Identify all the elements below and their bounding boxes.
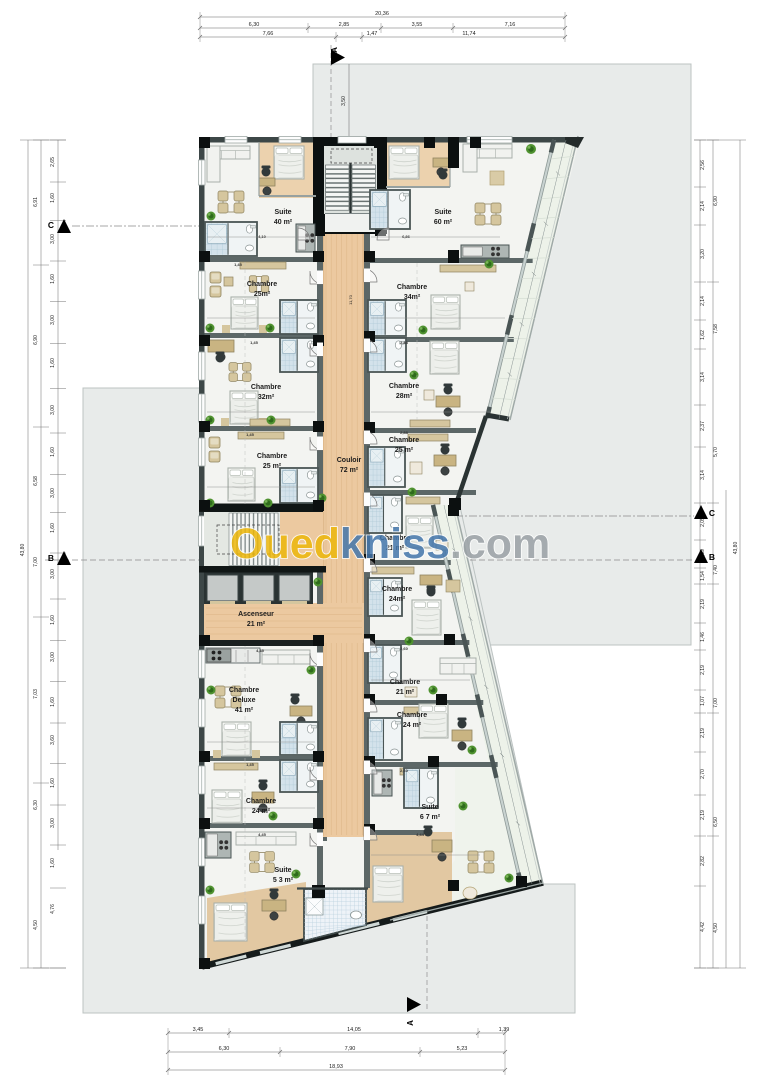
svg-text:Suite: Suite bbox=[434, 209, 451, 216]
svg-text:34m²: 34m² bbox=[404, 294, 421, 301]
svg-text:4,50: 4,50 bbox=[33, 920, 39, 930]
svg-text:Ouedkniss.com: Ouedkniss.com bbox=[230, 520, 550, 568]
svg-text:Chambre: Chambre bbox=[389, 383, 419, 390]
svg-text:1,39: 1,39 bbox=[499, 1027, 510, 1033]
svg-text:41 m²: 41 m² bbox=[235, 707, 254, 714]
svg-text:1,60: 1,60 bbox=[50, 697, 56, 707]
svg-text:3,00: 3,00 bbox=[50, 652, 56, 662]
svg-text:40 m²: 40 m² bbox=[274, 219, 293, 226]
svg-text:11,74: 11,74 bbox=[462, 31, 475, 37]
svg-text:24 m²: 24 m² bbox=[403, 722, 422, 729]
svg-text:Chambre: Chambre bbox=[229, 687, 259, 694]
svg-text:C: C bbox=[48, 220, 54, 230]
svg-text:25m²: 25m² bbox=[254, 291, 271, 298]
svg-text:6,30: 6,30 bbox=[249, 22, 260, 28]
svg-text:7,40: 7,40 bbox=[713, 565, 719, 575]
svg-text:3,00: 3,00 bbox=[50, 315, 56, 325]
svg-text:3,00: 3,00 bbox=[50, 818, 56, 828]
svg-text:Couloir: Couloir bbox=[337, 457, 362, 464]
svg-text:6,30: 6,30 bbox=[219, 1046, 230, 1052]
svg-text:1,60: 1,60 bbox=[50, 523, 56, 533]
svg-text:4,45: 4,45 bbox=[258, 832, 267, 837]
svg-text:1,54: 1,54 bbox=[700, 571, 706, 581]
svg-text:2,60: 2,60 bbox=[400, 646, 409, 651]
svg-text:Chambre: Chambre bbox=[382, 586, 412, 593]
svg-text:11,70: 11,70 bbox=[348, 294, 353, 304]
svg-text:Deluxe: Deluxe bbox=[233, 697, 256, 704]
svg-text:20,36: 20,36 bbox=[375, 11, 389, 17]
svg-text:25 m²: 25 m² bbox=[395, 447, 414, 454]
svg-text:4,42: 4,42 bbox=[700, 922, 706, 932]
svg-text:Chambre: Chambre bbox=[397, 284, 427, 291]
svg-text:C: C bbox=[709, 508, 715, 518]
svg-text:1,62: 1,62 bbox=[700, 330, 706, 340]
svg-text:B: B bbox=[48, 553, 54, 563]
svg-text:7,90: 7,90 bbox=[345, 1046, 356, 1052]
svg-text:72 m²: 72 m² bbox=[340, 467, 359, 474]
svg-text:24 m²: 24 m² bbox=[252, 808, 271, 815]
svg-text:1,60: 1,60 bbox=[50, 447, 56, 457]
svg-text:6,58: 6,58 bbox=[33, 476, 39, 486]
svg-text:3,00: 3,00 bbox=[50, 569, 56, 579]
svg-text:4,45: 4,45 bbox=[256, 648, 265, 653]
svg-text:3,00: 3,00 bbox=[50, 405, 56, 415]
svg-text:Suite: Suite bbox=[421, 804, 438, 811]
svg-text:2,70: 2,70 bbox=[700, 769, 706, 779]
svg-text:1,45: 1,45 bbox=[246, 762, 255, 767]
svg-text:6,50: 6,50 bbox=[713, 817, 719, 827]
svg-text:2,19: 2,19 bbox=[700, 728, 706, 738]
svg-text:14,05: 14,05 bbox=[347, 1027, 361, 1033]
svg-text:6,90: 6,90 bbox=[713, 196, 719, 206]
svg-text:4,10: 4,10 bbox=[258, 234, 267, 239]
svg-text:2,60: 2,60 bbox=[400, 768, 409, 773]
svg-text:28m²: 28m² bbox=[396, 393, 413, 400]
svg-text:7,58: 7,58 bbox=[713, 324, 719, 334]
svg-text:2,88: 2,88 bbox=[400, 430, 409, 435]
svg-text:2,14: 2,14 bbox=[700, 296, 706, 306]
svg-text:1,46: 1,46 bbox=[700, 632, 706, 642]
svg-text:6,91: 6,91 bbox=[33, 197, 39, 207]
svg-text:3,60: 3,60 bbox=[50, 735, 56, 745]
svg-text:1,60: 1,60 bbox=[50, 193, 56, 203]
svg-text:Chambre: Chambre bbox=[246, 798, 276, 805]
svg-text:3,14: 3,14 bbox=[700, 372, 706, 382]
svg-text:2,19: 2,19 bbox=[700, 665, 706, 675]
svg-text:25 m²: 25 m² bbox=[263, 463, 282, 470]
svg-text:2,65: 2,65 bbox=[50, 157, 56, 167]
svg-text:4,50: 4,50 bbox=[713, 923, 719, 933]
svg-text:7,66: 7,66 bbox=[263, 31, 274, 37]
svg-text:18,93: 18,93 bbox=[329, 1064, 343, 1070]
svg-text:Suite: Suite bbox=[274, 867, 291, 874]
svg-text:3,55: 3,55 bbox=[412, 22, 423, 28]
svg-text:2,19: 2,19 bbox=[700, 810, 706, 820]
svg-text:1,45: 1,45 bbox=[246, 432, 255, 437]
svg-text:21 m²: 21 m² bbox=[396, 689, 415, 696]
svg-text:3,20: 3,20 bbox=[700, 249, 706, 259]
svg-text:3,14: 3,14 bbox=[700, 470, 706, 480]
svg-text:4,76: 4,76 bbox=[50, 904, 56, 914]
svg-text:Ascenseur: Ascenseur bbox=[238, 611, 274, 618]
svg-text:Chambre: Chambre bbox=[247, 281, 277, 288]
svg-text:1,60: 1,60 bbox=[50, 274, 56, 284]
svg-text:7,00: 7,00 bbox=[33, 557, 39, 567]
svg-text:1,45: 1,45 bbox=[234, 262, 243, 267]
svg-text:2,37: 2,37 bbox=[700, 421, 706, 431]
svg-text:7,03: 7,03 bbox=[33, 689, 39, 699]
svg-text:32m²: 32m² bbox=[258, 394, 275, 401]
svg-text:2,82: 2,82 bbox=[700, 856, 706, 866]
svg-text:5 3 m²: 5 3 m² bbox=[273, 877, 294, 884]
svg-text:2,14: 2,14 bbox=[700, 201, 706, 211]
svg-text:Chambre: Chambre bbox=[257, 453, 287, 460]
svg-text:Chambre: Chambre bbox=[251, 384, 281, 391]
svg-text:3,45: 3,45 bbox=[193, 1027, 204, 1033]
svg-text:3,00: 3,00 bbox=[50, 488, 56, 498]
svg-text:1,45: 1,45 bbox=[250, 340, 259, 345]
svg-text:4,44: 4,44 bbox=[416, 832, 425, 837]
svg-text:1,60: 1,60 bbox=[50, 858, 56, 868]
svg-text:1,60: 1,60 bbox=[50, 615, 56, 625]
svg-text:5,70: 5,70 bbox=[713, 447, 719, 457]
svg-text:1,07: 1,07 bbox=[700, 696, 706, 706]
svg-text:7,00: 7,00 bbox=[713, 698, 719, 708]
svg-text:1,60: 1,60 bbox=[50, 358, 56, 368]
svg-text:21 m²: 21 m² bbox=[247, 621, 266, 628]
svg-text:43,80: 43,80 bbox=[20, 544, 26, 557]
svg-text:3,00: 3,00 bbox=[50, 234, 56, 244]
svg-text:43,80: 43,80 bbox=[733, 542, 739, 555]
svg-text:1,47: 1,47 bbox=[367, 31, 378, 37]
svg-text:2,19: 2,19 bbox=[700, 599, 706, 609]
svg-text:B: B bbox=[709, 552, 715, 562]
svg-text:2,88: 2,88 bbox=[400, 340, 409, 345]
svg-text:3,50: 3,50 bbox=[341, 96, 347, 106]
svg-text:Suite: Suite bbox=[274, 209, 291, 216]
svg-text:2,56: 2,56 bbox=[700, 160, 706, 170]
svg-text:60 m²: 60 m² bbox=[434, 219, 453, 226]
svg-text:Chambre: Chambre bbox=[397, 712, 427, 719]
svg-text:24m²: 24m² bbox=[389, 596, 406, 603]
svg-text:2,85: 2,85 bbox=[339, 22, 350, 28]
svg-text:1,60: 1,60 bbox=[50, 778, 56, 788]
svg-text:5,23: 5,23 bbox=[457, 1046, 468, 1052]
svg-text:6,90: 6,90 bbox=[33, 335, 39, 345]
svg-text:A: A bbox=[330, 47, 339, 53]
svg-text:6,86: 6,86 bbox=[402, 234, 411, 239]
svg-text:Chambre: Chambre bbox=[389, 437, 419, 444]
svg-text:7,16: 7,16 bbox=[505, 22, 516, 28]
svg-text:6,30: 6,30 bbox=[33, 800, 39, 810]
svg-text:6 7 m²: 6 7 m² bbox=[420, 814, 441, 821]
svg-text:A: A bbox=[406, 1020, 415, 1026]
